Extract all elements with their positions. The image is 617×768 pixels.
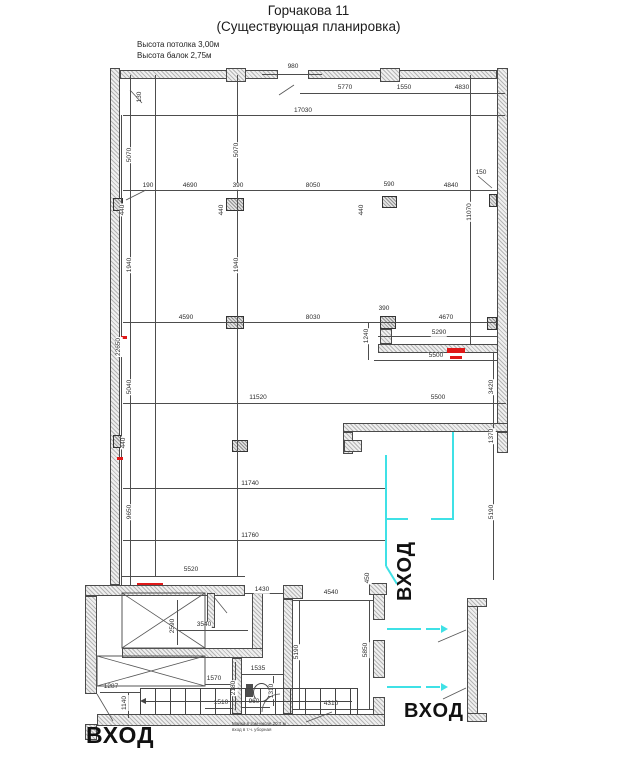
dimension-label: 4590 bbox=[178, 315, 194, 322]
dimension-line bbox=[293, 600, 373, 601]
column bbox=[232, 440, 248, 452]
wall-segment bbox=[467, 713, 487, 722]
dimension-line bbox=[123, 488, 387, 489]
dimension-line bbox=[262, 74, 322, 75]
cyan-partition-line bbox=[387, 628, 421, 630]
shaft-cross bbox=[97, 656, 205, 686]
dimension-label: 440 bbox=[219, 204, 226, 217]
wall-segment bbox=[373, 640, 385, 678]
wall-segment bbox=[380, 68, 400, 82]
wall-segment bbox=[122, 648, 263, 658]
dimension-line bbox=[300, 93, 505, 94]
annotation-line2: вход в т.ч. уборная bbox=[232, 727, 320, 733]
dimension-label: 4670 bbox=[438, 315, 454, 322]
dimension-label: 5500 bbox=[428, 353, 444, 360]
shaft-cross bbox=[122, 593, 205, 648]
leader-line bbox=[126, 190, 146, 200]
red-mark bbox=[137, 583, 163, 585]
dimension-label: 1940 bbox=[234, 257, 241, 273]
dimension-label: 1550 bbox=[396, 85, 412, 92]
leader-line bbox=[478, 176, 492, 188]
dimension-label: 1370 bbox=[489, 428, 496, 444]
dimension-label: 5190 bbox=[489, 504, 496, 520]
shaft-cross bbox=[122, 593, 205, 648]
entrance-direction-arrow bbox=[441, 625, 448, 633]
cyan-partition-line bbox=[385, 455, 387, 520]
entrance-label-side-rotated: ВХОД bbox=[394, 541, 417, 601]
wall-segment bbox=[343, 423, 508, 432]
dimension-line bbox=[123, 115, 505, 116]
cyan-partition-line bbox=[431, 518, 454, 520]
shaft-outline bbox=[97, 656, 205, 686]
wall-segment bbox=[85, 585, 245, 596]
dimension-label: 11760 bbox=[240, 533, 260, 540]
dimension-label: 190 bbox=[142, 183, 155, 190]
dimension-label: 5070 bbox=[234, 142, 241, 158]
dimension-line bbox=[177, 600, 178, 645]
dimension-label: 5040 bbox=[127, 379, 134, 395]
red-mark bbox=[447, 348, 465, 353]
dimension-line bbox=[123, 322, 497, 323]
dimension-label: 4830 bbox=[454, 85, 470, 92]
dimension-line bbox=[123, 403, 506, 404]
dimension-line bbox=[205, 684, 232, 685]
dimension-label: 5850 bbox=[363, 642, 370, 658]
column bbox=[489, 194, 497, 207]
dimension-label: 5500 bbox=[430, 395, 446, 402]
entrance-direction-arrow bbox=[441, 683, 448, 691]
dimension-label: 1430 bbox=[254, 587, 270, 594]
cyan-partition-line bbox=[385, 518, 408, 520]
dimension-label: 450 bbox=[365, 572, 372, 585]
shaft-outline bbox=[122, 593, 205, 648]
dimension-label: 1570 bbox=[206, 676, 222, 683]
cyan-partition-line bbox=[426, 686, 440, 688]
wall-segment bbox=[497, 68, 508, 453]
dimension-label: 22650 bbox=[116, 337, 123, 357]
wall-segment bbox=[369, 583, 387, 595]
dimension-line bbox=[374, 360, 497, 361]
wall-segment bbox=[497, 432, 508, 453]
dimension-label: 3540 bbox=[196, 622, 212, 629]
dimension-line bbox=[100, 692, 140, 693]
dimension-label: 440 bbox=[121, 437, 128, 450]
dimension-label: 1287 bbox=[103, 684, 119, 691]
dimension-line bbox=[121, 576, 245, 577]
dimension-label: 9650 bbox=[127, 504, 134, 520]
dimension-label: 11520 bbox=[248, 395, 268, 402]
dimension-label: 1940 bbox=[127, 257, 134, 273]
wall-segment bbox=[85, 596, 97, 694]
red-mark bbox=[117, 457, 123, 460]
dimension-label: 4690 bbox=[182, 183, 198, 190]
column bbox=[226, 198, 244, 211]
leader-line bbox=[214, 597, 227, 613]
wall-segment bbox=[226, 68, 246, 82]
dimension-label: 590 bbox=[383, 182, 396, 189]
dimension-line bbox=[123, 190, 497, 191]
red-mark bbox=[450, 356, 462, 359]
wall-segment bbox=[344, 440, 362, 452]
dimension-label: 1535 bbox=[250, 666, 266, 673]
small-annotation-note: Мойка в том числе 20,7 м вход в т.ч. убо… bbox=[232, 721, 320, 732]
dimension-label: 11070 bbox=[467, 202, 474, 222]
dimension-label: 8030 bbox=[305, 315, 321, 322]
floor-plan-page: Горчакова 11 (Существующая планировка) В… bbox=[0, 0, 617, 768]
dimension-label: 980 bbox=[287, 64, 300, 71]
dimension-label: 390 bbox=[232, 183, 245, 190]
dimension-label: 5070 bbox=[127, 147, 134, 163]
wall-segment bbox=[467, 598, 487, 607]
dimension-label: 390 bbox=[378, 306, 391, 313]
cyan-partition-line bbox=[385, 520, 387, 566]
floor-plan-drawing: 9805770155048301703013050705070190469039… bbox=[0, 0, 617, 768]
dimension-label: 2590 bbox=[170, 618, 177, 634]
dimension-label: 5770 bbox=[337, 85, 353, 92]
dimension-label: 4840 bbox=[443, 183, 459, 190]
dimension-label: 5290 bbox=[431, 330, 447, 337]
shaft-cross bbox=[97, 656, 205, 686]
dimension-line bbox=[123, 540, 387, 541]
dimension-line bbox=[155, 75, 156, 576]
dimension-label: 3420 bbox=[489, 379, 496, 395]
leader-line bbox=[279, 85, 294, 95]
dimension-label: 440 bbox=[120, 204, 127, 217]
wall-segment bbox=[308, 70, 497, 79]
wall-segment bbox=[110, 68, 120, 585]
dimension-label: 1140 bbox=[122, 695, 129, 711]
entrance-label-bottom-right: ВХОД bbox=[404, 700, 464, 723]
dimension-label: 150 bbox=[475, 170, 488, 177]
dimension-label: 5520 bbox=[183, 567, 199, 574]
dimension-label: 5190 bbox=[294, 644, 301, 660]
stairs-direction-arrow bbox=[140, 698, 146, 704]
wall-segment bbox=[120, 70, 278, 79]
wall-segment bbox=[467, 598, 478, 722]
dimension-label: 4540 bbox=[323, 590, 339, 597]
column bbox=[487, 317, 497, 330]
dimension-line bbox=[242, 674, 283, 675]
wall-segment bbox=[252, 593, 263, 650]
column bbox=[382, 196, 397, 208]
cyan-partition-line bbox=[387, 686, 421, 688]
dimension-label: 17030 bbox=[293, 108, 313, 115]
entrance-label-bottom-left: ВХОД bbox=[86, 722, 154, 749]
cyan-partition-line bbox=[452, 432, 454, 520]
dimension-label: 130 bbox=[137, 91, 144, 104]
dimension-line bbox=[172, 630, 248, 631]
dimension-label: 440 bbox=[359, 204, 366, 217]
dimension-label: 1240 bbox=[364, 328, 371, 344]
dimension-label: 11740 bbox=[240, 481, 260, 488]
cyan-partition-line bbox=[426, 628, 440, 630]
wall-segment bbox=[283, 585, 303, 599]
dimension-label: 8050 bbox=[305, 183, 321, 190]
stairs-rail-line bbox=[146, 701, 352, 702]
